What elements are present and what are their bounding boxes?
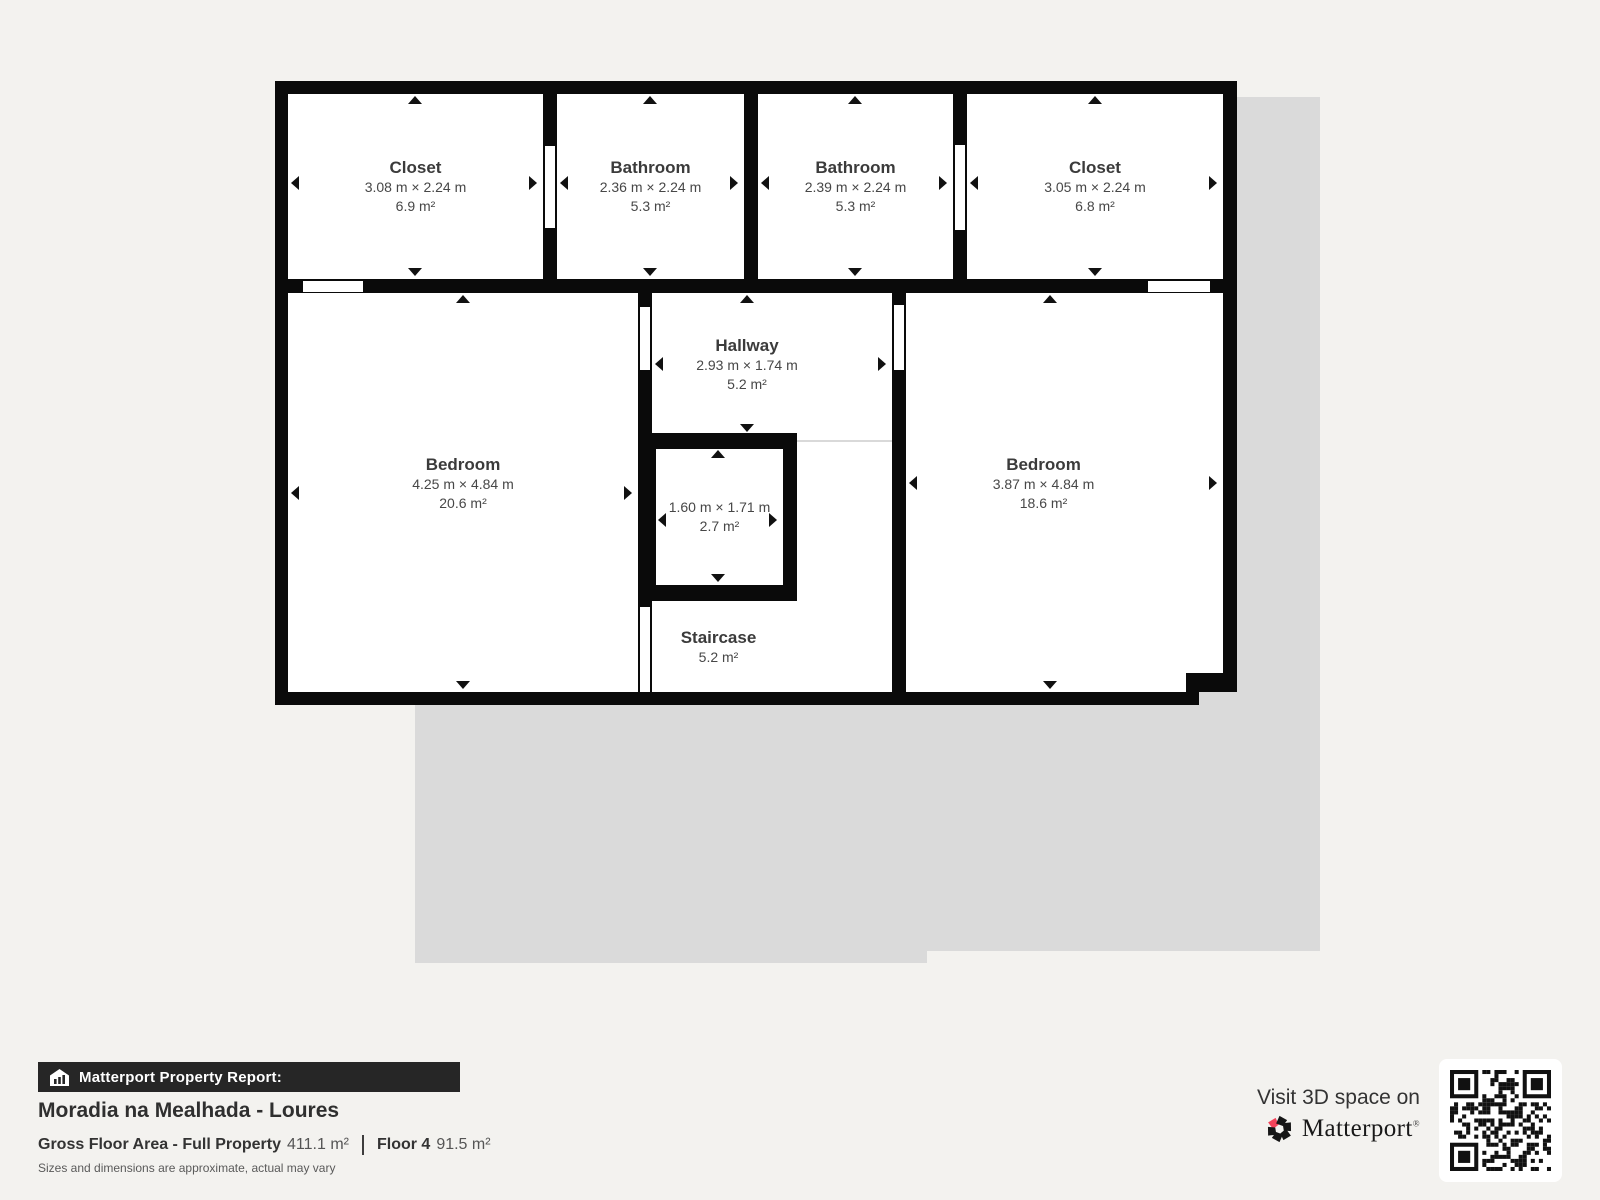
- measure-arrow-down: [848, 268, 862, 276]
- gross-floor-area-label: Gross Floor Area - Full Property: [38, 1136, 281, 1154]
- room-closet-1: [288, 94, 543, 279]
- measure-arrow-right: [1209, 176, 1217, 190]
- floor-label: Floor 4: [377, 1136, 430, 1154]
- measure-arrow-right: [1209, 476, 1217, 490]
- adjacent-floor-silhouette: [415, 951, 927, 963]
- measure-arrow-up: [408, 96, 422, 104]
- door-opening: [894, 305, 904, 370]
- report-bar-label: Matterport Property Report:: [79, 1069, 282, 1086]
- measure-arrow-left: [970, 176, 978, 190]
- property-title: Moradia na Mealhada - Loures: [38, 1099, 339, 1123]
- report-header-bar: Matterport Property Report:: [38, 1062, 460, 1092]
- measure-arrow-left: [291, 176, 299, 190]
- visit-3d-space-text: Visit 3D space on: [1257, 1086, 1420, 1110]
- measure-arrow-up: [643, 96, 657, 104]
- measure-arrow-down: [1088, 268, 1102, 276]
- measure-arrow-left: [655, 357, 663, 371]
- measure-arrow-left: [560, 176, 568, 190]
- door-opening: [303, 281, 363, 292]
- matterport-logo: Matterport®: [1265, 1115, 1420, 1143]
- house-icon: [50, 1069, 69, 1086]
- qr-code: [1450, 1070, 1551, 1171]
- measure-arrow-down: [456, 681, 470, 689]
- measure-arrow-left: [909, 476, 917, 490]
- measure-arrow-right: [939, 176, 947, 190]
- room-closet-2: [967, 94, 1223, 279]
- measure-arrow-right: [730, 176, 738, 190]
- room-bedroom-right: [906, 293, 1223, 692]
- measure-arrow-up: [740, 295, 754, 303]
- measure-arrow-down: [643, 268, 657, 276]
- measure-arrow-right: [769, 513, 777, 527]
- room-bathroom-1: [557, 94, 744, 279]
- hallway-staircase-separator: [797, 440, 892, 442]
- room-shaft: [656, 449, 783, 585]
- measure-arrow-up: [456, 295, 470, 303]
- measure-arrow-down: [408, 268, 422, 276]
- measure-arrow-right: [624, 486, 632, 500]
- door-opening: [545, 146, 555, 228]
- measure-arrow-up: [1043, 295, 1057, 303]
- door-opening: [640, 607, 650, 692]
- door-opening: [955, 145, 965, 230]
- room-bathroom-2: [758, 94, 953, 279]
- room-bedroom-left: [288, 293, 638, 692]
- disclaimer-text: Sizes and dimensions are approximate, ac…: [38, 1161, 335, 1175]
- corner-notch: [1199, 692, 1237, 705]
- measure-arrow-up: [711, 450, 725, 458]
- corner-step-wall: [1186, 673, 1237, 692]
- measure-arrow-up: [848, 96, 862, 104]
- door-opening: [1148, 281, 1210, 292]
- measure-arrow-up: [1088, 96, 1102, 104]
- measure-arrow-right: [529, 176, 537, 190]
- adjacent-floor-silhouette: [1237, 97, 1320, 705]
- visit-3d-space-block: Visit 3D space on Matterport®: [1257, 1086, 1420, 1143]
- gross-floor-area-value: 411.1 m²: [287, 1136, 349, 1154]
- measure-arrow-down: [711, 574, 725, 582]
- qr-card: [1439, 1059, 1562, 1182]
- matterport-pinwheel-icon: [1265, 1115, 1294, 1143]
- measure-arrow-down: [740, 424, 754, 432]
- floor-area-value: 91.5 m²: [436, 1136, 490, 1154]
- measure-arrow-right: [878, 357, 886, 371]
- measure-arrow-down: [1043, 681, 1057, 689]
- stats-divider: [362, 1135, 364, 1155]
- matterport-wordmark: Matterport®: [1302, 1115, 1420, 1143]
- area-stats: Gross Floor Area - Full Property 411.1 m…: [38, 1135, 491, 1155]
- matterport-floorplan-report: Closet 3.08 m × 2.24 m 6.9 m² Bathroom 2…: [0, 0, 1600, 1200]
- measure-arrow-left: [658, 513, 666, 527]
- measure-arrow-left: [291, 486, 299, 500]
- adjacent-floor-silhouette: [415, 705, 1320, 951]
- door-opening: [640, 307, 650, 370]
- measure-arrow-left: [761, 176, 769, 190]
